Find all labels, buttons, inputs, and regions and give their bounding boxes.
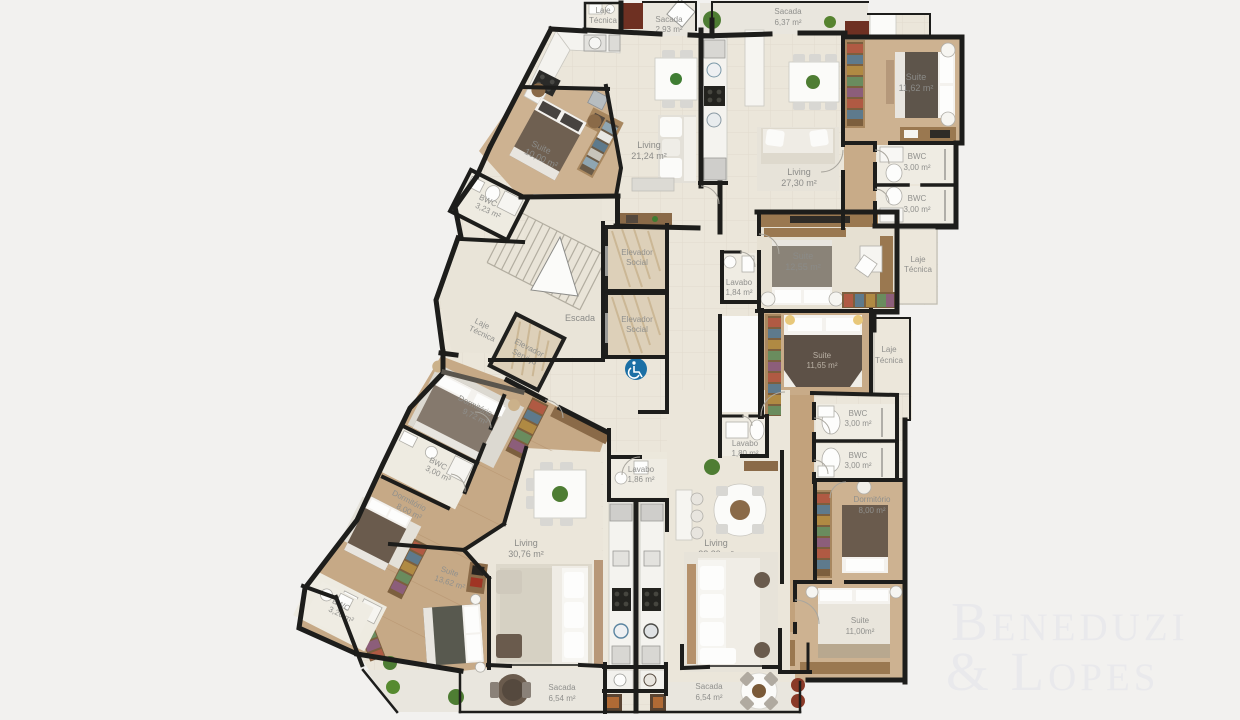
svg-text:Living: Living bbox=[637, 140, 661, 150]
svg-text:27,30 m²: 27,30 m² bbox=[781, 178, 817, 188]
svg-text:Suite: Suite bbox=[851, 616, 870, 625]
svg-text:BWC: BWC bbox=[908, 194, 927, 203]
svg-text:Sacada: Sacada bbox=[695, 682, 723, 691]
svg-text:21,24 m²: 21,24 m² bbox=[631, 151, 667, 161]
svg-text:Lavabo: Lavabo bbox=[732, 439, 759, 448]
svg-text:30,76 m²: 30,76 m² bbox=[508, 549, 544, 559]
svg-text:Elevador: Elevador bbox=[621, 248, 653, 257]
svg-text:Lavabo: Lavabo bbox=[628, 465, 655, 474]
svg-text:3,00 m²: 3,00 m² bbox=[903, 205, 930, 214]
svg-text:Lavabo: Lavabo bbox=[726, 278, 753, 287]
svg-text:Elevador: Elevador bbox=[621, 315, 653, 324]
svg-text:11,65 m²: 11,65 m² bbox=[807, 361, 838, 370]
svg-text:Laje: Laje bbox=[910, 255, 926, 264]
svg-text:12,55 m²: 12,55 m² bbox=[785, 262, 821, 272]
svg-text:BWC: BWC bbox=[908, 152, 927, 161]
svg-text:3,00 m²: 3,00 m² bbox=[903, 163, 930, 172]
svg-text:Laje: Laje bbox=[881, 345, 897, 354]
svg-text:& Lopes: & Lopes bbox=[946, 641, 1160, 702]
svg-text:Laje: Laje bbox=[595, 6, 611, 15]
svg-text:Social: Social bbox=[626, 258, 648, 267]
svg-text:Dormitório: Dormitório bbox=[854, 495, 891, 504]
svg-text:11,62 m²: 11,62 m² bbox=[899, 83, 934, 93]
svg-text:Suite: Suite bbox=[813, 351, 832, 360]
svg-text:Sacada: Sacada bbox=[655, 15, 683, 24]
svg-text:Técnica: Técnica bbox=[875, 356, 904, 365]
svg-text:Living: Living bbox=[514, 538, 538, 548]
svg-text:Living: Living bbox=[704, 538, 728, 548]
svg-text:3,00 m²: 3,00 m² bbox=[844, 419, 871, 428]
svg-text:Escada: Escada bbox=[565, 313, 595, 323]
svg-text:Suite: Suite bbox=[793, 251, 814, 261]
svg-text:BWC: BWC bbox=[849, 451, 868, 460]
svg-text:1,84 m²: 1,84 m² bbox=[725, 288, 752, 297]
svg-text:3,00 m²: 3,00 m² bbox=[844, 461, 871, 470]
svg-text:Sacada: Sacada bbox=[774, 7, 802, 16]
svg-text:BWC: BWC bbox=[849, 409, 868, 418]
svg-text:6,54 m²: 6,54 m² bbox=[548, 694, 575, 703]
svg-text:6,37 m²: 6,37 m² bbox=[774, 18, 801, 27]
svg-text:Living: Living bbox=[787, 167, 811, 177]
svg-text:Suite: Suite bbox=[906, 72, 927, 82]
svg-text:6,54 m²: 6,54 m² bbox=[695, 693, 722, 702]
svg-text:8,00 m²: 8,00 m² bbox=[858, 506, 885, 515]
svg-text:Sacada: Sacada bbox=[548, 683, 576, 692]
svg-text:Técnica: Técnica bbox=[589, 16, 618, 25]
svg-text:11,00m²: 11,00m² bbox=[846, 627, 875, 636]
svg-text:1,86 m²: 1,86 m² bbox=[627, 475, 654, 484]
svg-text:Social: Social bbox=[626, 325, 648, 334]
svg-text:Técnica: Técnica bbox=[904, 265, 933, 274]
